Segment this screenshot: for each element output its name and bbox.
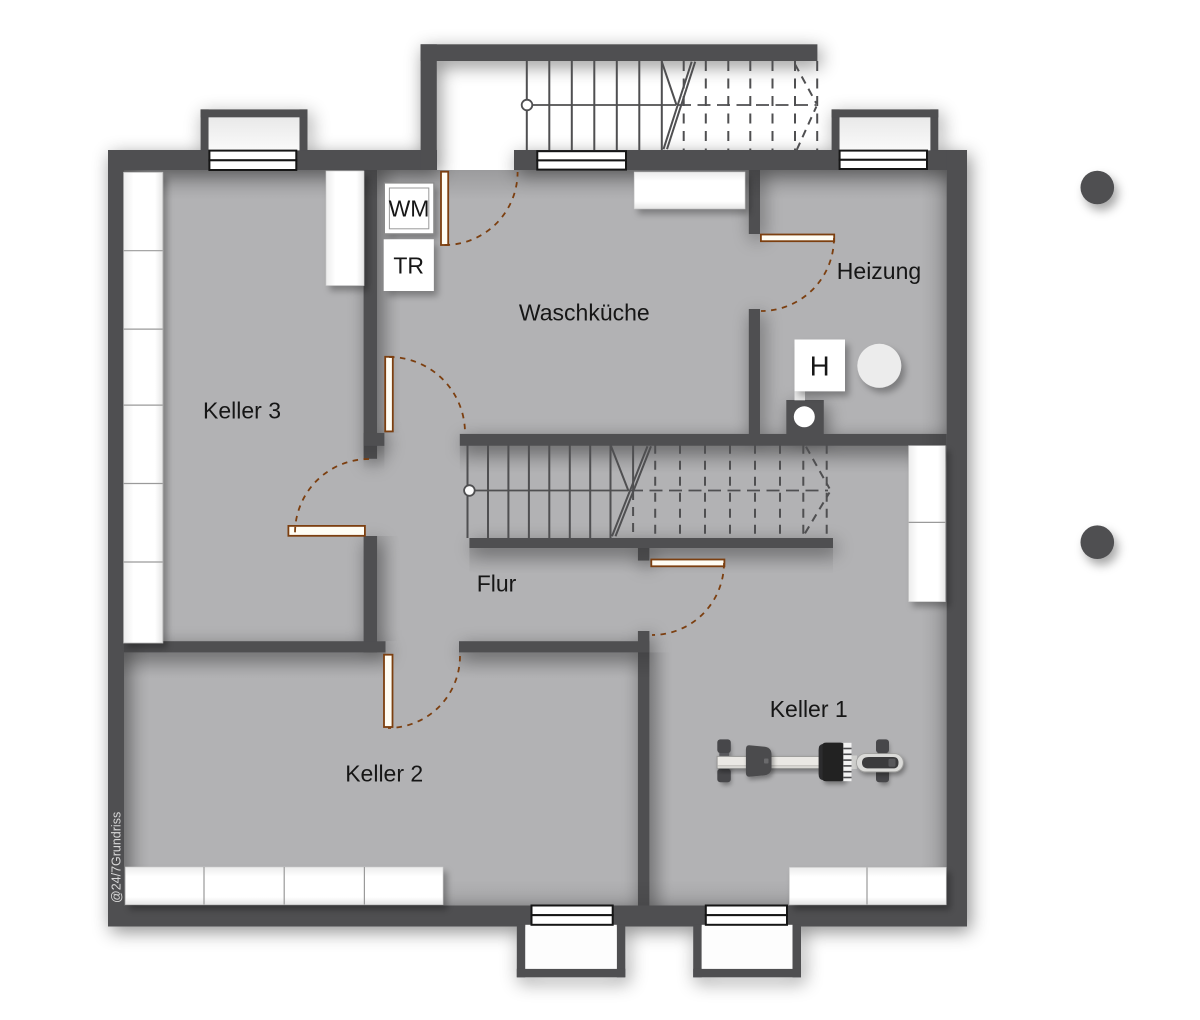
svg-text:@24/7Grundriss: @24/7Grundriss — [110, 812, 124, 903]
svg-text:Waschküche: Waschküche — [519, 300, 650, 326]
svg-text:Flur: Flur — [477, 571, 517, 597]
svg-text:Keller 1: Keller 1 — [770, 696, 848, 722]
svg-text:H: H — [810, 351, 830, 382]
svg-text:Keller 2: Keller 2 — [345, 761, 423, 787]
svg-text:Keller 3: Keller 3 — [203, 398, 281, 424]
svg-text:WM: WM — [389, 196, 430, 222]
svg-text:Heizung: Heizung — [837, 258, 921, 284]
svg-text:TR: TR — [393, 253, 424, 279]
